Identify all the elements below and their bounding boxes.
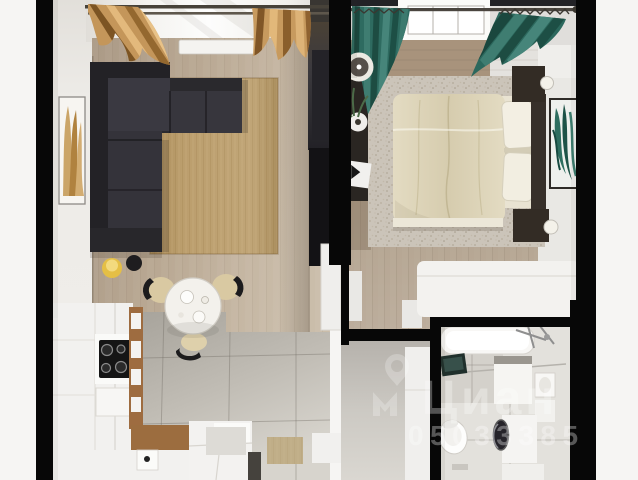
- svg-text:Циан: Циан: [422, 372, 558, 425]
- svg-text:05033385: 05033385: [408, 420, 585, 451]
